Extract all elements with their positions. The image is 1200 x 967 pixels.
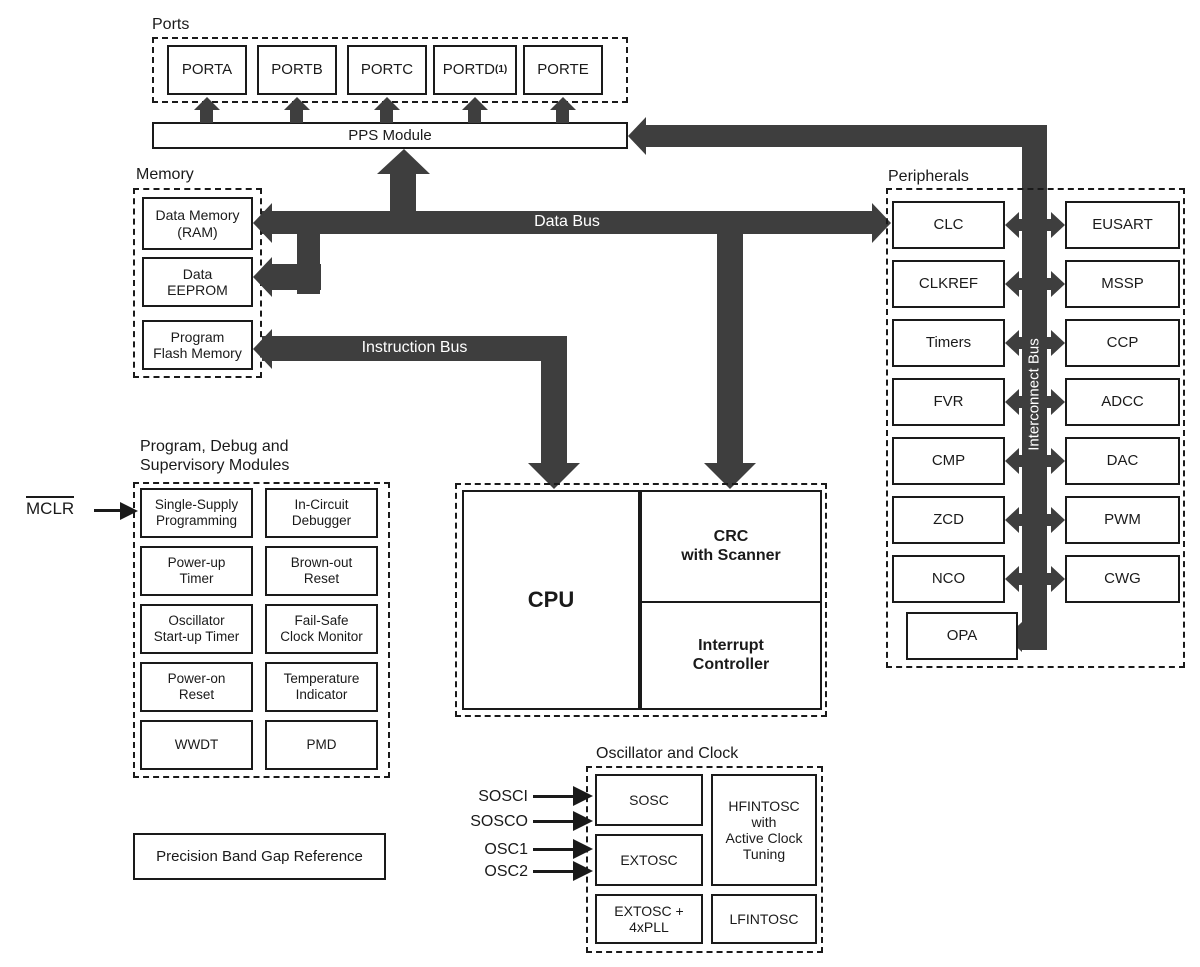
row7-bus-link-shaft	[1015, 573, 1055, 585]
pps-to-portc-arrowhead-icon	[374, 97, 400, 110]
eeprom-branch-arrowhead-icon	[253, 257, 272, 297]
osc1-arrowhead-icon	[573, 839, 593, 859]
instruction-bus-vertical	[541, 359, 567, 464]
mssp-box: MSSP	[1065, 260, 1180, 308]
temperature-indicator-box: Temperature Indicator	[265, 662, 378, 712]
data-bus-to-pps-shaft	[390, 173, 416, 213]
single-supply-programming-box: Single-Supply Programming	[140, 488, 253, 538]
pps-to-portd-arrowhead-icon	[462, 97, 488, 110]
data-memory-ram-box: Data Memory (RAM)	[142, 197, 253, 250]
brown-out-reset-box: Brown-out Reset	[265, 546, 378, 596]
clkref-box: CLKREF	[892, 260, 1005, 308]
row6-left-arrowhead-icon	[1005, 507, 1019, 533]
porte-box: PORTE	[523, 45, 603, 95]
row5-right-arrowhead-icon	[1051, 448, 1065, 474]
row2-bus-link-shaft	[1015, 278, 1055, 290]
data-bus-to-pps-arrowhead-icon	[377, 149, 430, 174]
extosc-box: EXTOSC	[595, 834, 703, 886]
row6-right-arrowhead-icon	[1051, 507, 1065, 533]
data-eeprom-box: Data EEPROM	[142, 257, 253, 307]
osc2-arrow-line	[533, 870, 575, 873]
debug-section-heading: Program, Debug and Supervisory Modules	[140, 437, 289, 475]
program-flash-memory-box: Program Flash Memory	[142, 320, 253, 370]
row5-left-arrowhead-icon	[1005, 448, 1019, 474]
row4-right-arrowhead-icon	[1051, 389, 1065, 415]
osc1-arrow-line	[533, 848, 575, 851]
pps-to-portc-arrow-shaft	[380, 110, 393, 123]
clc-box: CLC	[892, 201, 1005, 249]
porta-box: PORTA	[167, 45, 247, 95]
data-bus-label: Data Bus	[262, 213, 872, 231]
oscillator-section-label: Oscillator and Clock	[596, 744, 738, 763]
cpu-box: CPU	[462, 490, 640, 710]
pps-to-porta-arrow-shaft	[200, 110, 213, 123]
row1-bus-link-shaft	[1015, 219, 1055, 231]
mclr-pin-label: MCLR	[26, 499, 74, 518]
sosc-box: SOSC	[595, 774, 703, 826]
nco-box: NCO	[892, 555, 1005, 603]
ports-section-label: Ports	[152, 15, 189, 34]
cmp-box: CMP	[892, 437, 1005, 485]
porta-label: PORTA	[182, 61, 232, 78]
fail-safe-clock-monitor-box: Fail-Safe Clock Monitor	[265, 604, 378, 654]
lfintosc-box: LFINTOSC	[711, 894, 817, 944]
pps-to-porta-arrowhead-icon	[194, 97, 220, 110]
row3-left-arrowhead-icon	[1005, 330, 1019, 356]
pps-to-porte-arrow-shaft	[556, 110, 569, 123]
power-up-timer-box: Power-up Timer	[140, 546, 253, 596]
in-circuit-debugger-box: In-Circuit Debugger	[265, 488, 378, 538]
eusart-box: EUSART	[1065, 201, 1180, 249]
pps-interconnect-bus-horizontal	[644, 125, 1047, 147]
timers-box: Timers	[892, 319, 1005, 367]
crc-scanner-box: CRC with Scanner	[640, 490, 822, 603]
sosco-arrowhead-icon	[573, 811, 593, 831]
band-gap-reference-box: Precision Band Gap Reference	[133, 833, 386, 880]
block-diagram: Ports PORTA PORTB PORTC PORTD(1) PORTE P…	[0, 0, 1200, 967]
memory-section-label: Memory	[136, 165, 194, 184]
pps-interconnect-arrowhead-icon	[628, 117, 646, 155]
sosco-arrow-line	[533, 820, 575, 823]
row6-bus-link-shaft	[1015, 514, 1055, 526]
pps-to-portb-arrowhead-icon	[284, 97, 310, 110]
pps-to-porte-arrowhead-icon	[550, 97, 576, 110]
mclr-arrowhead-icon	[120, 502, 138, 520]
row2-left-arrowhead-icon	[1005, 271, 1019, 297]
mclr-text: MCLR	[26, 496, 74, 518]
portd-box: PORTD(1)	[433, 45, 517, 95]
pps-module-bar: PPS Module	[152, 122, 628, 149]
sosco-pin-label: SOSCO	[455, 812, 528, 831]
row3-right-arrowhead-icon	[1051, 330, 1065, 356]
row1-left-arrowhead-icon	[1005, 212, 1019, 238]
dac-box: DAC	[1065, 437, 1180, 485]
fvr-box: FVR	[892, 378, 1005, 426]
cwg-box: CWG	[1065, 555, 1180, 603]
data-bus-vertical-drop	[717, 232, 743, 464]
sosci-arrow-line	[533, 795, 575, 798]
extosc-4xpll-box: EXTOSC + 4xPLL	[595, 894, 703, 944]
portd-label: PORTD	[443, 61, 495, 78]
opa-box: OPA	[906, 612, 1018, 660]
peripherals-section-label: Peripherals	[888, 167, 969, 186]
wwdt-box: WWDT	[140, 720, 253, 770]
pps-to-portd-arrow-shaft	[468, 110, 481, 123]
row4-left-arrowhead-icon	[1005, 389, 1019, 415]
oscillator-start-up-timer-box: Oscillator Start-up Timer	[140, 604, 253, 654]
ccp-box: CCP	[1065, 319, 1180, 367]
adcc-box: ADCC	[1065, 378, 1180, 426]
hfintosc-box: HFINTOSC with Active Clock Tuning	[711, 774, 817, 886]
row2-right-arrowhead-icon	[1051, 271, 1065, 297]
portb-box: PORTB	[257, 45, 337, 95]
row7-right-arrowhead-icon	[1051, 566, 1065, 592]
sosci-arrowhead-icon	[573, 786, 593, 806]
osc2-pin-label: OSC2	[455, 862, 528, 881]
pps-to-portb-arrow-shaft	[290, 110, 303, 123]
portb-label: PORTB	[271, 61, 322, 78]
row7-left-arrowhead-icon	[1005, 566, 1019, 592]
osc2-arrowhead-icon	[573, 861, 593, 881]
portc-label: PORTC	[361, 61, 413, 78]
eeprom-branch-horizontal	[271, 264, 321, 290]
interconnect-bus-label: Interconnect Bus	[1022, 300, 1047, 490]
pwm-box: PWM	[1065, 496, 1180, 544]
zcd-box: ZCD	[892, 496, 1005, 544]
row1-right-arrowhead-icon	[1051, 212, 1065, 238]
power-on-reset-box: Power-on Reset	[140, 662, 253, 712]
sosci-pin-label: SOSCI	[455, 787, 528, 806]
osc1-pin-label: OSC1	[455, 840, 528, 859]
portc-box: PORTC	[347, 45, 427, 95]
instruction-bus-label: Instruction Bus	[262, 339, 567, 357]
porte-label: PORTE	[537, 61, 588, 78]
interrupt-controller-box: Interrupt Controller	[640, 601, 822, 710]
pmd-box: PMD	[265, 720, 378, 770]
portd-footnote: (1)	[495, 64, 507, 76]
